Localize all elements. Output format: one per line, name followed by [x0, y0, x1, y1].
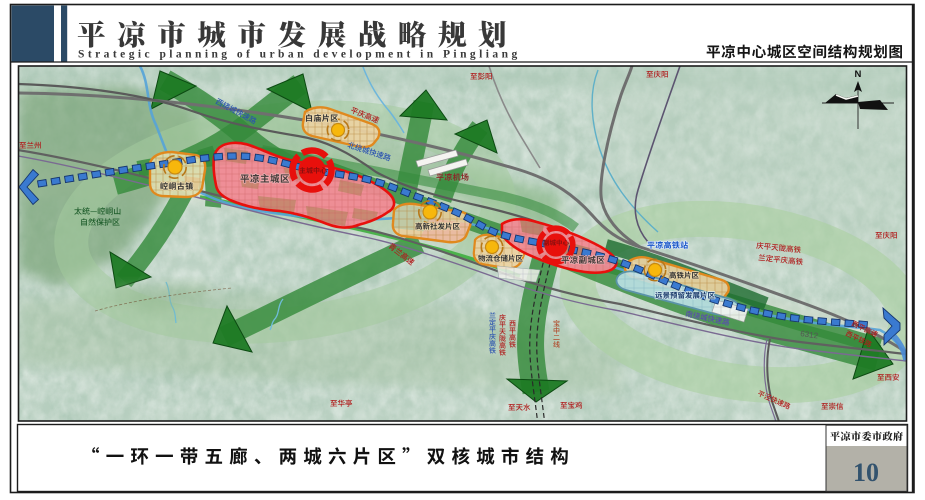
svg-text:Strategic planning of urban de: Strategic planning of urban development …	[78, 49, 521, 61]
svg-text:N: N	[855, 69, 862, 80]
svg-text:10: 10	[853, 458, 879, 487]
